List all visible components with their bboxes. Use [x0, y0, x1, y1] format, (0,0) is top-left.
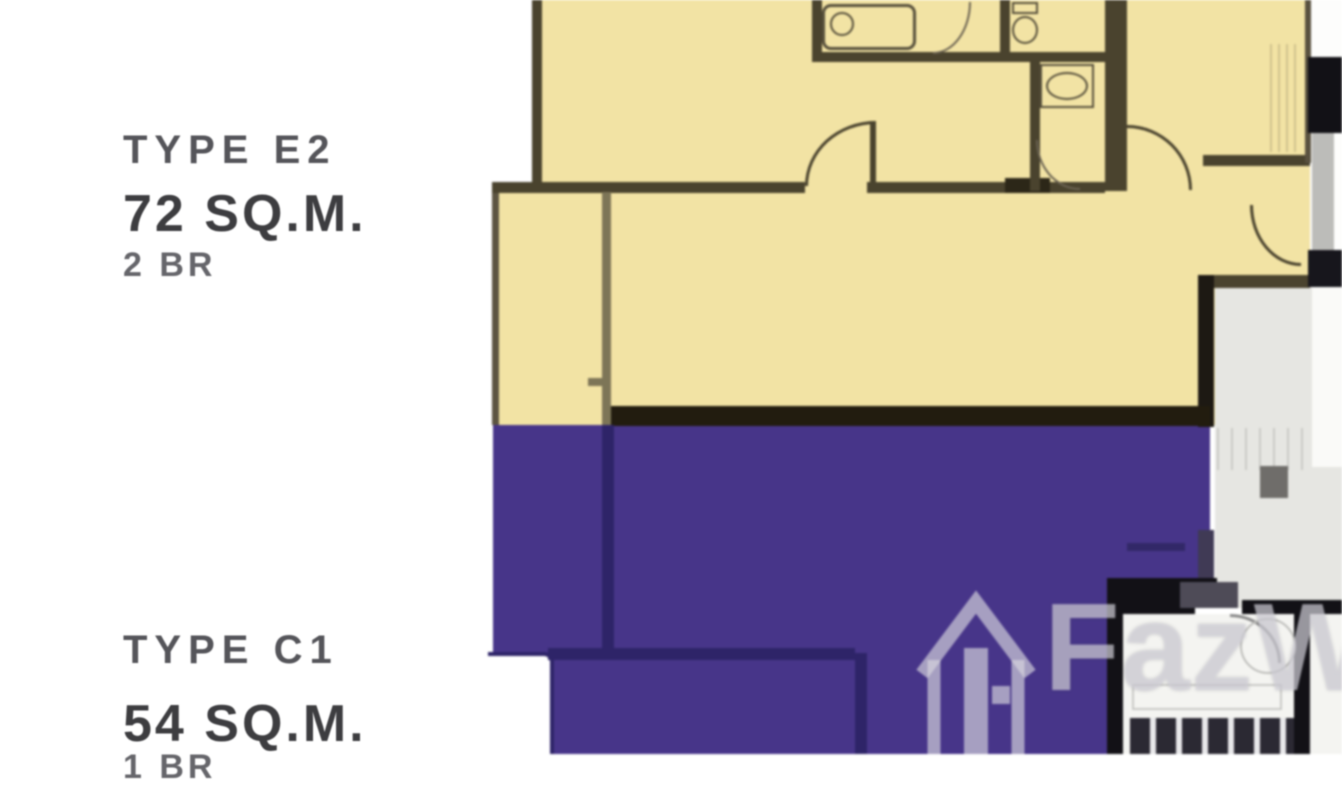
unit-e2-region — [493, 0, 1310, 425]
wall — [610, 406, 1210, 426]
shaft-block — [1308, 57, 1342, 133]
wall — [817, 52, 1105, 62]
floor-plan: FazWaz — [488, 0, 1342, 754]
corridor-white-strip — [1312, 287, 1342, 467]
unit-c1-type-label: TYPE C1 — [123, 628, 339, 673]
plan-notch — [488, 652, 554, 754]
unit-e2-type-label: TYPE E2 — [123, 128, 337, 173]
shaft-block — [1308, 250, 1342, 287]
wall — [548, 648, 855, 660]
wall — [532, 0, 542, 186]
wall — [1198, 530, 1214, 580]
background-gap — [488, 0, 532, 186]
corridor-door-slab — [1260, 466, 1288, 498]
unit-e2-area-label: 72 SQ.M. — [123, 184, 367, 244]
wall — [1203, 155, 1310, 166]
sink-symbol — [1046, 72, 1088, 100]
wall — [1105, 0, 1127, 191]
unit-c1-area-label: 54 SQ.M. — [123, 694, 367, 754]
wall — [602, 425, 614, 657]
window-line — [1127, 543, 1185, 551]
wall — [855, 653, 867, 754]
window-hatch — [1270, 44, 1296, 152]
toilet-symbol — [1012, 2, 1038, 14]
unit-e2-bedrooms-label: 2 BR — [123, 246, 216, 285]
stair-treads — [1217, 428, 1303, 470]
bathtub-drain — [830, 12, 854, 36]
wall — [1030, 52, 1040, 191]
wall — [1198, 275, 1310, 288]
wall — [1005, 178, 1050, 193]
wall — [492, 182, 805, 193]
balcony-divider — [602, 192, 611, 425]
wall — [812, 0, 822, 62]
unit-c1-region — [493, 425, 1210, 600]
balcony-door-step — [588, 378, 606, 386]
watermark: FazWaz — [916, 590, 1342, 754]
wall — [1000, 0, 1010, 62]
wall — [492, 186, 499, 425]
watermark-text: FazWaz — [1044, 590, 1342, 708]
unit-legend: TYPE E2 72 SQ.M. 2 BR TYPE C1 54 SQ.M. 1… — [0, 0, 488, 754]
house-logo-icon — [916, 590, 1036, 754]
shaft-column — [1312, 133, 1334, 250]
toilet-bowl — [1012, 16, 1038, 44]
wall — [1198, 275, 1214, 427]
